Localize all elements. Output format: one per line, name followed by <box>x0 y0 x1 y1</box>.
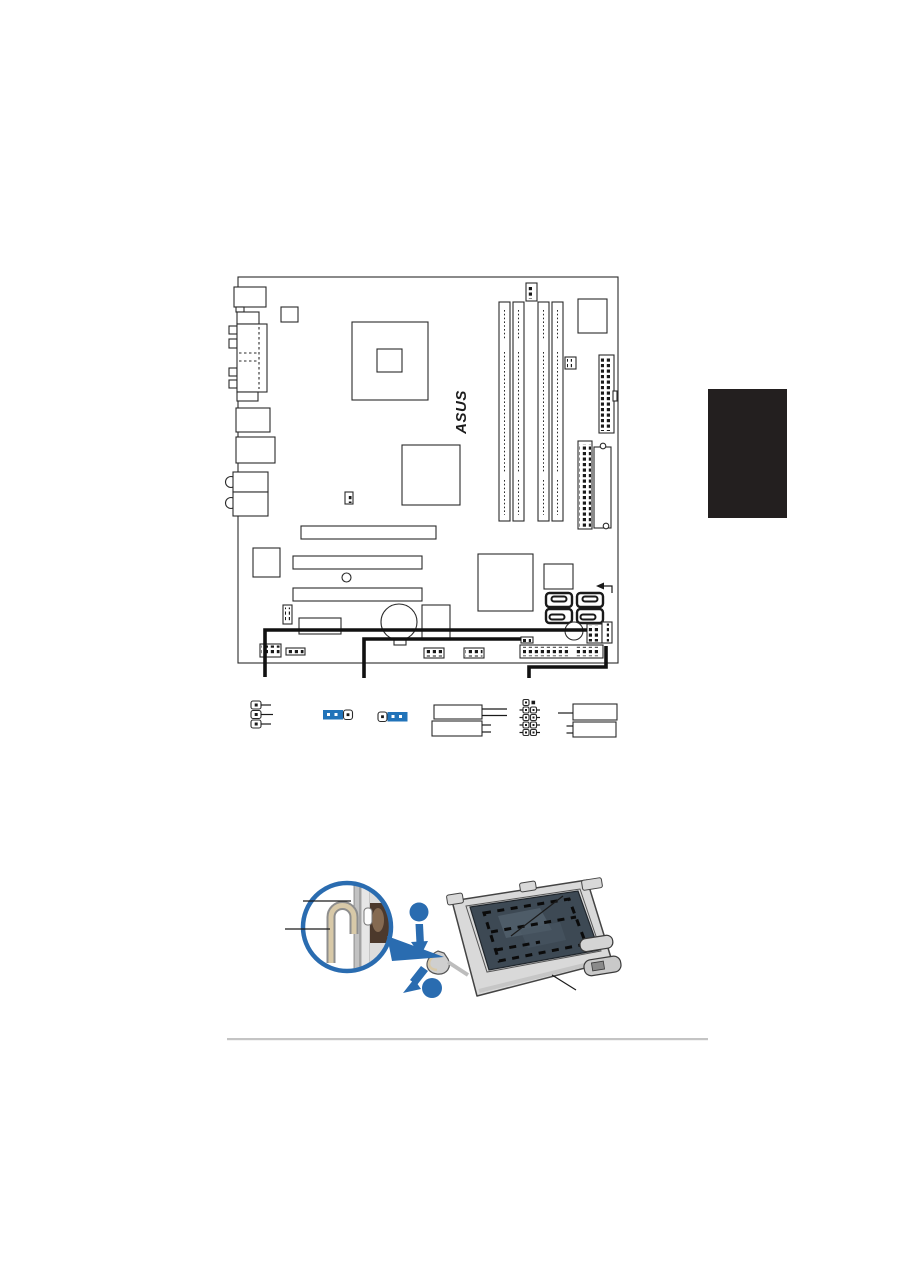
ide-connector <box>594 447 611 528</box>
chapter-side-tab <box>708 389 787 518</box>
lan-port <box>236 408 270 432</box>
socket-illustration <box>427 877 622 996</box>
vga-parallel-port <box>237 324 267 392</box>
audio-jack <box>233 472 268 492</box>
cpu-socket-installation-figure <box>285 877 622 998</box>
ps2-port <box>234 287 266 307</box>
label-boxes-right <box>558 704 617 737</box>
asus-logo: ASUS <box>453 390 470 435</box>
leader-line <box>552 975 576 990</box>
manual-page: ASUS <box>0 0 900 1274</box>
chipset <box>402 445 460 505</box>
step-markers <box>387 903 444 999</box>
jumper-detail-row <box>251 700 617 738</box>
footer-rule <box>227 1038 708 1040</box>
pci-slot <box>293 556 422 569</box>
magnifier-detail <box>285 883 394 972</box>
step-dot-icon <box>410 903 429 922</box>
usb-header-diagram <box>520 700 541 736</box>
southbridge <box>478 554 533 611</box>
pci-slot <box>293 588 422 601</box>
audio-jack <box>233 492 268 516</box>
down-arrow-icon <box>416 924 425 944</box>
jumper-cap-setting-2-3 <box>378 712 408 722</box>
jumper-cap-setting-1-2 <box>323 710 353 720</box>
buzzer <box>381 604 417 640</box>
agp-slot <box>301 526 436 539</box>
three-pin-jumper-diagram <box>251 701 273 728</box>
motherboard-layout-figure: ASUS <box>226 277 619 737</box>
step-dot-icon <box>422 978 442 998</box>
page-graphics: ASUS <box>0 0 900 1274</box>
usb-ports <box>236 437 275 463</box>
label-boxes-left <box>432 705 507 736</box>
